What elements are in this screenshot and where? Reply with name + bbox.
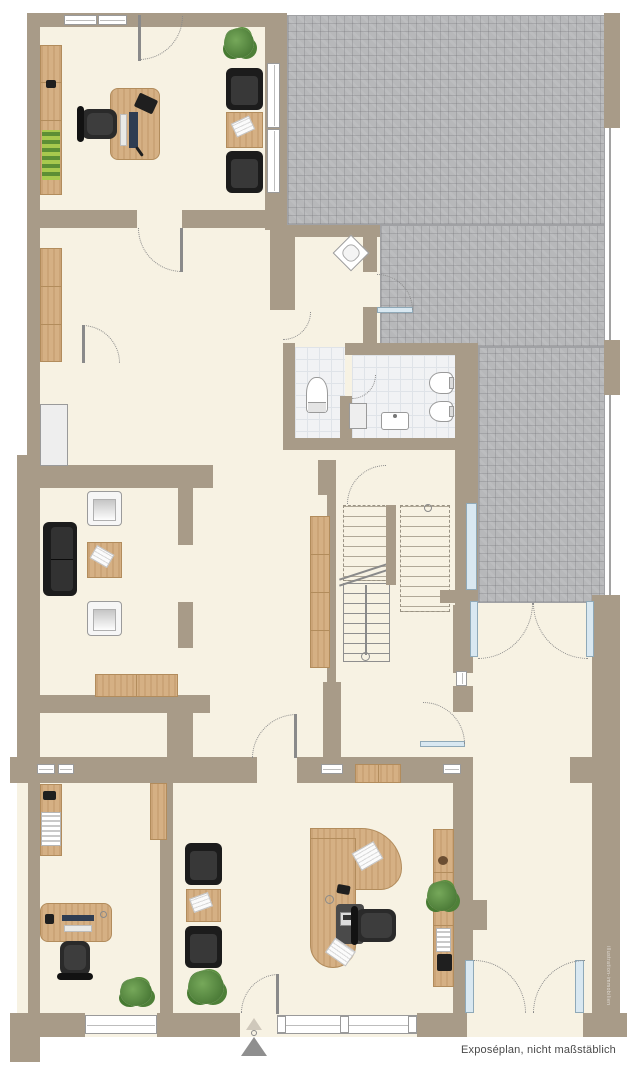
stair-arrow-dot — [424, 504, 432, 512]
window — [64, 15, 97, 25]
shelf-divider — [311, 630, 329, 631]
wall — [283, 343, 295, 355]
shelf-divider — [136, 675, 137, 696]
window-glass — [466, 503, 477, 590]
wall — [363, 307, 377, 347]
window-slit — [443, 764, 461, 774]
shelf-item — [437, 954, 452, 971]
wall — [270, 225, 283, 310]
toilet — [306, 377, 328, 413]
hall-shelf — [40, 248, 62, 362]
plant — [224, 28, 254, 58]
window-slit — [58, 764, 74, 774]
wall-toilet — [429, 401, 453, 422]
terrace-mid — [380, 225, 605, 347]
armchair — [226, 68, 263, 110]
wall — [157, 1013, 240, 1037]
monitor — [62, 915, 94, 921]
window-post — [340, 1016, 349, 1033]
keyboard — [64, 925, 92, 932]
shower-tray — [349, 403, 367, 429]
wardrobe — [150, 783, 167, 840]
floor-plan: Exposéplan, nicht maßstäblich illustrati… — [0, 0, 639, 1080]
boundary-line — [609, 128, 611, 340]
wall — [178, 602, 193, 648]
wall — [17, 695, 210, 713]
shelf-files — [41, 812, 61, 846]
wall — [417, 1013, 467, 1037]
wall — [318, 460, 336, 495]
office-chair — [81, 109, 117, 139]
wall — [583, 1013, 627, 1037]
phone — [45, 914, 54, 924]
wall — [283, 355, 295, 440]
wall — [453, 686, 473, 712]
shelf-divider — [434, 872, 453, 873]
wall — [604, 340, 620, 395]
wall — [455, 343, 478, 450]
shelf-divider — [41, 286, 61, 287]
entrance-marker-dot — [251, 1030, 257, 1036]
office-chair — [60, 941, 90, 976]
sideboard — [40, 404, 68, 466]
wall — [178, 488, 193, 545]
armchair — [226, 151, 263, 193]
shelf-divider — [434, 925, 453, 926]
armchair — [87, 491, 122, 526]
wall — [323, 682, 341, 757]
window-band — [85, 1015, 157, 1034]
entrance-marker-outline — [246, 1018, 262, 1030]
window — [456, 671, 467, 686]
washbasin — [381, 412, 409, 430]
keyboard — [120, 114, 127, 146]
plant — [188, 970, 224, 1004]
window — [267, 129, 280, 193]
window-slit — [37, 764, 55, 774]
sofa — [43, 522, 77, 596]
wall-pier — [453, 900, 487, 930]
office-chair — [355, 909, 396, 942]
french-door-leaf — [470, 601, 478, 657]
shelf-divider — [41, 120, 61, 121]
wall-corner-block — [10, 1013, 40, 1062]
stair-rail-end — [361, 652, 370, 661]
wall — [604, 13, 620, 128]
armchair — [185, 843, 222, 885]
terrace-lower — [478, 347, 605, 603]
wall — [28, 783, 40, 1013]
window-slit — [321, 764, 343, 774]
shelf-divider — [41, 324, 61, 325]
cup — [100, 911, 107, 918]
armchair — [185, 926, 222, 968]
shelf-item — [46, 80, 56, 88]
wall — [283, 225, 380, 237]
shelf-files — [436, 928, 451, 952]
armchair — [87, 601, 122, 636]
mouse — [325, 895, 334, 904]
wall — [17, 465, 213, 488]
window — [98, 15, 127, 25]
terrace-upper — [287, 15, 605, 225]
shelf-binders — [42, 130, 60, 180]
french-door-leaf — [465, 960, 474, 1013]
entrance-marker-arrow — [241, 1037, 267, 1056]
bowl — [438, 856, 448, 865]
wall-toilet — [429, 372, 453, 394]
stair-center-rail — [365, 585, 367, 655]
shelf-divider — [311, 554, 329, 555]
wall — [167, 713, 193, 757]
wall — [27, 210, 137, 228]
wall — [27, 13, 40, 460]
window-post — [408, 1016, 417, 1033]
monitor — [129, 112, 138, 148]
shelf-divider — [378, 765, 379, 782]
wall — [283, 237, 295, 310]
plant — [120, 978, 152, 1006]
plant — [427, 881, 457, 911]
wall — [440, 590, 473, 603]
wall — [283, 438, 455, 450]
plan-caption: Exposéplan, nicht maßstäblich — [320, 1044, 616, 1056]
boundary-line — [609, 395, 611, 595]
watermark: illustration-immobilien — [605, 946, 611, 1016]
wall — [386, 505, 396, 585]
shelf-item — [43, 791, 56, 800]
window-post — [277, 1016, 286, 1033]
window — [267, 63, 280, 128]
shelf-divider — [311, 592, 329, 593]
